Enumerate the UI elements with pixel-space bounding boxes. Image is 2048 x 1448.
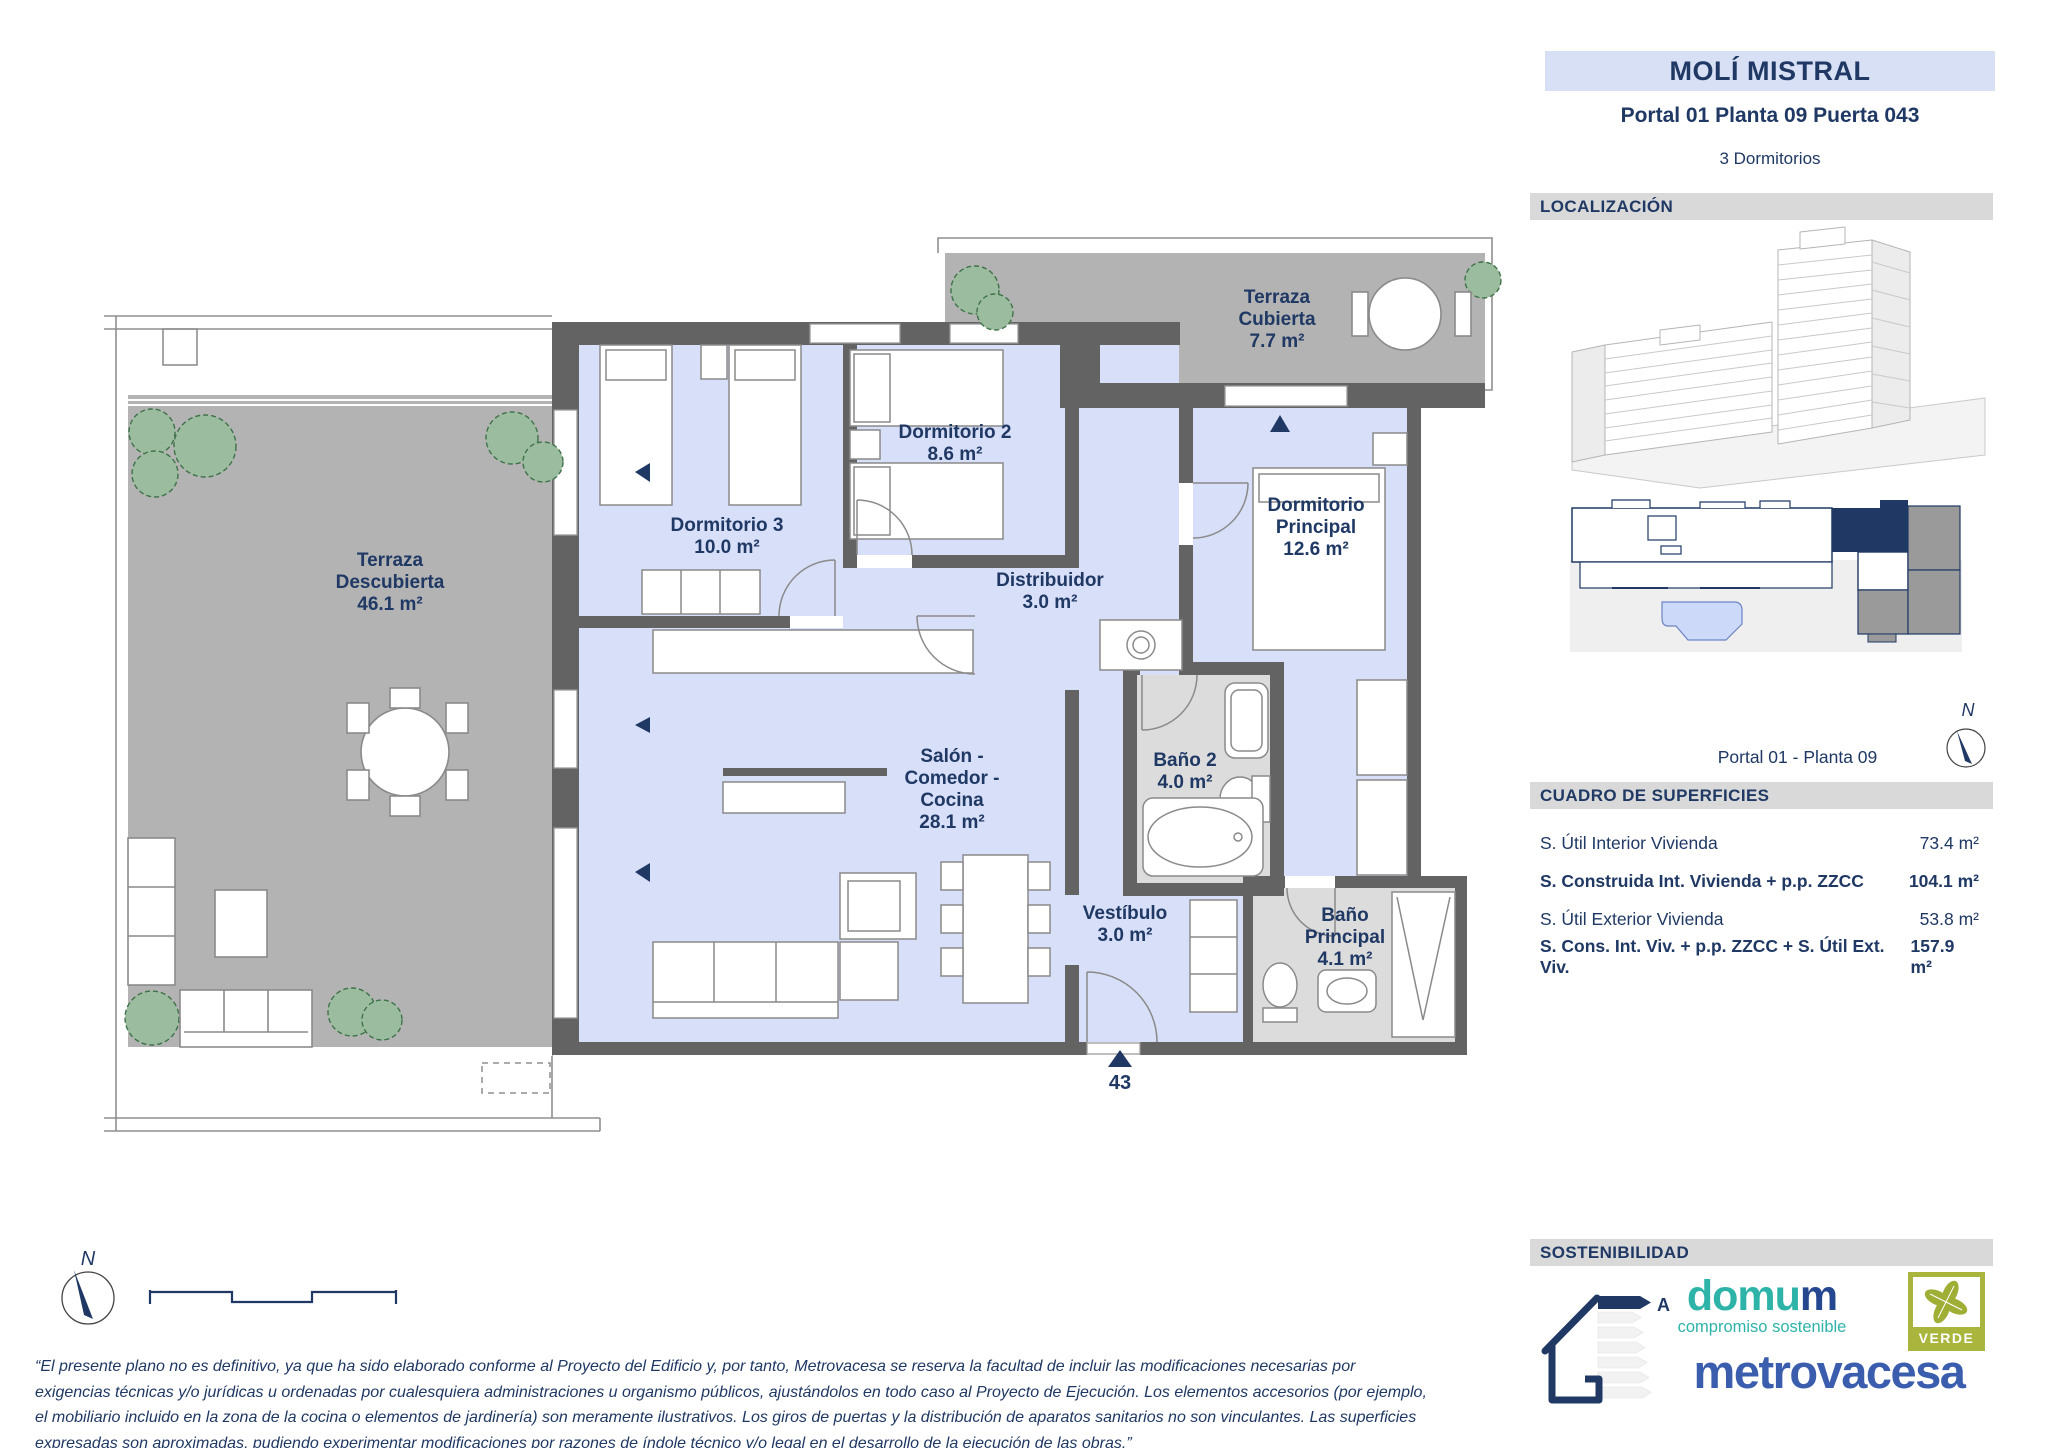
room-name: Dormitorio 3 [671,515,784,537]
room-label-salon-comedor-cocina: Salón - Comedor - Cocina 28.1 m² [905,746,1000,834]
door-number: 43 [1096,1072,1144,1095]
project-title: MOLÍ MISTRAL [1670,56,1871,86]
room-area: 7.7 m² [1238,331,1315,353]
room-name: Distribuidor [996,570,1104,592]
surface-row: S. Útil Exterior Vivienda 53.8 m² [1530,900,1993,938]
room-name: Terraza Descubierta [336,550,445,594]
plan-compass-label: N [68,1248,108,1271]
plan-compass-icon [62,1270,114,1324]
room-label-dormitorio-3: Dormitorio 3 10.0 m² [671,515,784,559]
surface-label: S. Útil Interior Vivienda [1540,833,1718,854]
verde-logo: VERDE [1908,1272,1985,1351]
surface-row: S. Cons. Int. Viv. + p.p. ZZCC + S. Útil… [1530,938,1993,976]
surface-value: 104.1 m² [1909,871,1979,892]
surface-row: S. Útil Interior Vivienda 73.4 m² [1530,824,1993,862]
domum-tagline: compromiso sostenible [1662,1318,1862,1337]
plan-sheet: A Terraza Descubierta 46.1 m² Dormitorio… [0,0,2048,1448]
surface-label: S. Útil Exterior Vivienda [1540,909,1724,930]
room-area: 12.6 m² [1267,539,1364,561]
room-label-dormitorio-2: Dormitorio 2 8.6 m² [899,422,1012,466]
dashed-utility-box [482,1063,550,1093]
project-title-band: MOLÍ MISTRAL [1545,51,1995,91]
tv-shelf [723,768,887,776]
surface-label: S. Cons. Int. Viv. + p.p. ZZCC + S. Útil… [1540,936,1911,978]
room-name: Dormitorio 2 [899,422,1012,444]
surface-value: 157.9 m² [1911,936,1979,978]
room-label-bano-principal: Baño Principal 4.1 m² [1305,905,1385,971]
surfaces-section-header: CUADRO DE SUPERFICIES [1530,782,1993,809]
room-label-terraza-cubierta: Terraza Cubierta 7.7 m² [1238,287,1315,353]
room-area: 46.1 m² [336,594,445,616]
room-area: 4.1 m² [1305,949,1385,971]
room-label-vestibulo: Vestíbulo 3.0 m² [1083,903,1167,947]
room-name: Dormitorio Principal [1267,495,1364,539]
room-label-terraza-descubierta: Terraza Descubierta 46.1 m² [336,550,445,616]
surface-value: 73.4 m² [1920,833,1979,854]
room-name: Terraza Cubierta [1238,287,1315,331]
energy-arrow-a [1598,1296,1651,1309]
room-label-dormitorio-principal: Dormitorio Principal 12.6 m² [1267,495,1364,561]
room-name: Salón - Comedor - Cocina [905,746,1000,812]
scale-bar [150,1290,396,1304]
room-area: 10.0 m² [671,537,784,559]
domum-logo: domum compromiso sostenible [1662,1274,1862,1337]
locator-plan [1570,500,1962,652]
surface-row: S. Construida Int. Vivienda + p.p. ZZCC … [1530,862,1993,900]
surfaces-table: S. Útil Interior Vivienda 73.4 m² S. Con… [1530,824,1993,976]
domum-wordmark: domum [1662,1274,1862,1318]
surface-label: S. Construida Int. Vivienda + p.p. ZZCC [1540,871,1864,892]
bedrooms-count: 3 Dormitorios [1545,149,1995,169]
unit-reference: Portal 01 Planta 09 Puerta 043 [1545,104,1995,128]
verde-leaf-icon [1913,1277,1980,1327]
locator-compass-label: N [1948,700,1988,721]
energy-house-icon: A [1545,1295,1670,1400]
room-area: 4.0 m² [1153,772,1216,794]
localization-section-header: LOCALIZACIÓN [1530,193,1993,220]
metrovacesa-logo: metrovacesa [1660,1344,1998,1399]
building-render-illustration [1572,227,1985,488]
sustainability-section-header: SOSTENIBILIDAD [1530,1239,1993,1266]
room-label-bano-2: Baño 2 4.0 m² [1153,750,1216,794]
room-name: Vestíbulo [1083,903,1167,925]
locator-unit-highlight [1832,500,1908,552]
room-label-distribuidor: Distribuidor 3.0 m² [996,570,1104,614]
disclaimer-text: “El presente plano no es definitivo, ya … [35,1354,1435,1448]
surface-value: 53.8 m² [1920,909,1979,930]
locator-caption: Portal 01 - Planta 09 [1600,747,1995,768]
room-area: 28.1 m² [905,812,1000,834]
room-name: Baño Principal [1305,905,1385,949]
terraza-descubierta-floor [128,395,552,1047]
room-area: 3.0 m² [1083,925,1167,947]
room-name: Baño 2 [1153,750,1216,772]
room-area: 8.6 m² [899,444,1012,466]
room-area: 3.0 m² [996,592,1104,614]
